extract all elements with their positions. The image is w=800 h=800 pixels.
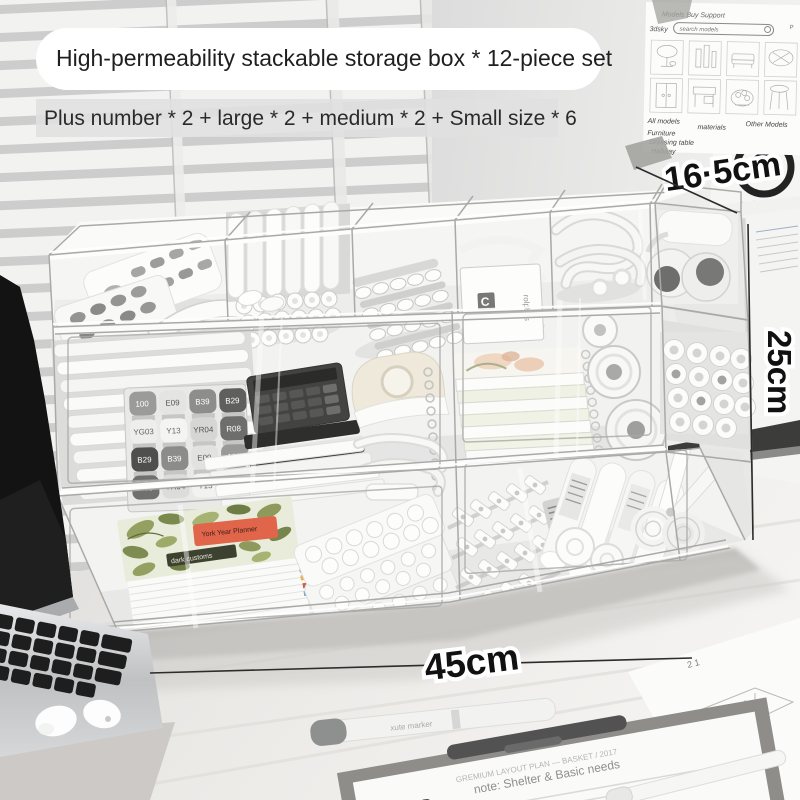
svg-text:Y13: Y13 (166, 426, 181, 436)
svg-text:B29: B29 (137, 455, 152, 465)
svg-text:P: P (790, 25, 794, 31)
svg-text:High-permeability stackable st: High-permeability stackable storage box … (56, 45, 613, 71)
svg-text:YG03: YG03 (133, 427, 154, 437)
svg-text:3dsky: 3dsky (649, 26, 668, 33)
svg-text:B39: B39 (195, 397, 210, 407)
svg-text:materials: materials (697, 124, 726, 132)
svg-text:25cm: 25cm (761, 330, 798, 414)
svg-text:Plus number * 2 + large * 2 +: Plus number * 2 + large * 2 + medium * 2… (44, 107, 577, 130)
svg-text:B39: B39 (167, 454, 182, 464)
svg-text:All models: All models (647, 118, 681, 126)
svg-text:100: 100 (135, 399, 149, 408)
svg-text:R08: R08 (226, 424, 242, 434)
svg-text:search models: search models (679, 27, 718, 34)
svg-text:B29: B29 (225, 396, 240, 406)
svg-text:Other Models: Other Models (746, 121, 789, 129)
svg-text:E09: E09 (165, 398, 180, 408)
svg-text:C: C (480, 295, 490, 309)
svg-text:YR04: YR04 (193, 425, 214, 435)
